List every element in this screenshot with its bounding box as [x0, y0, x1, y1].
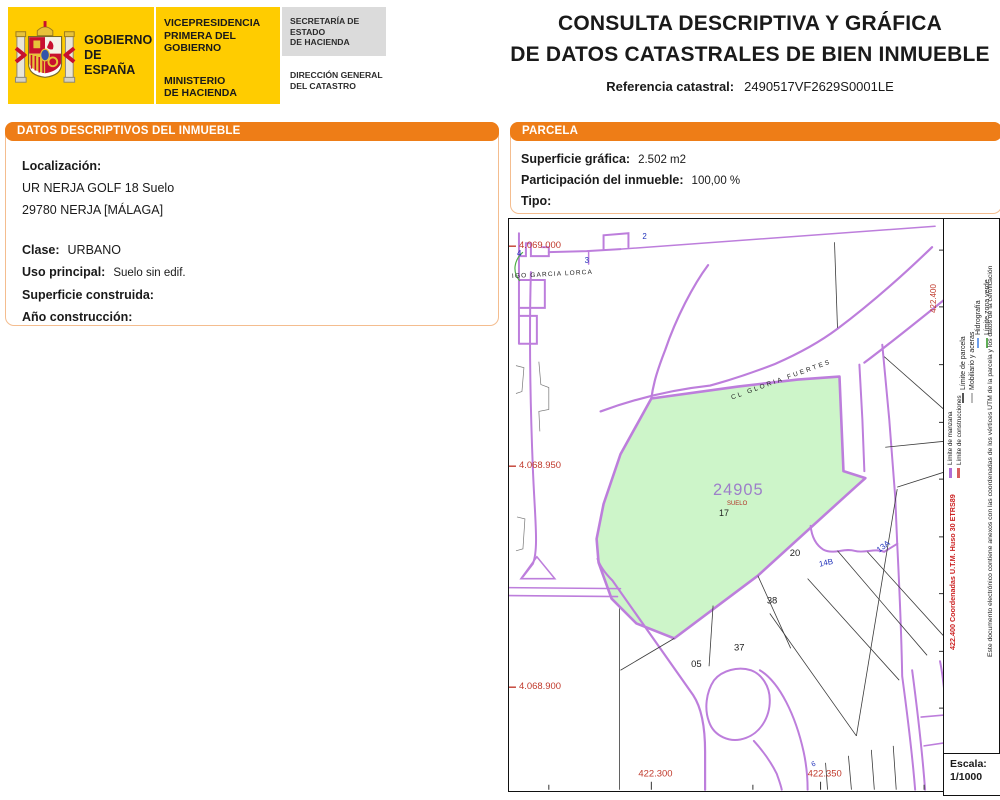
house-number-14b: 14B — [818, 557, 834, 569]
superficie-grafica-label: Superficie gráfica: — [521, 149, 630, 169]
manzana-line-symbol — [949, 468, 952, 478]
legend-limite-parcela: Límite de parcela — [960, 336, 967, 390]
plot-number-20: 20 — [790, 548, 801, 559]
secretaria-label: SECRETARÍA DE ESTADO DE HACIENDA — [290, 16, 386, 48]
localizacion-line-2: 29780 NERJA [MÁLAGA] — [22, 199, 498, 221]
parcel-use-label: SUELO — [727, 501, 748, 507]
participacion-label: Participación del inmueble: — [521, 170, 684, 190]
plot-number-05: 05 — [691, 659, 702, 670]
uso-principal-value: Suelo sin edif. — [113, 262, 185, 284]
scale-label: Escala: — [950, 758, 1000, 771]
utm-y-label-2: 4.068.950 — [519, 460, 561, 471]
plot-number-38: 38 — [767, 596, 778, 607]
parcela-line-symbol — [962, 393, 964, 403]
house-number-4: 4 — [517, 249, 522, 258]
legend-hidrografia: Hidrografía — [975, 300, 982, 335]
direccion-block: DIRECCIÓN GENERAL DEL CATASTRO — [282, 56, 386, 104]
spain-coat-of-arms — [14, 18, 76, 94]
utm-x-label-1: 422.300 — [638, 769, 672, 780]
localizacion-label: Localización: — [22, 159, 101, 173]
title-line-1: CONSULTA DESCRIPTIVA Y GRÁFICA — [500, 8, 1000, 39]
scale-box: Escala: 1/1000 — [943, 753, 1000, 796]
street-name-garcia-lorca: IGO GARCIA LORCA — [512, 269, 594, 280]
house-number-2: 2 — [642, 232, 647, 241]
utm-x-label-3-rotated: 422.400 — [929, 284, 938, 313]
title-line-2: DE DATOS CATASTRALES DE BIEN INMUEBLE — [500, 39, 1000, 70]
mobiliario-line-symbol — [971, 393, 973, 403]
cadastral-map: 4.069.000 4.068.950 4.068.900 422.300 42… — [508, 218, 945, 792]
utm-y-label-3: 4.068.900 — [519, 681, 561, 692]
construcciones-line-symbol — [957, 468, 960, 478]
ministry-block: VICEPRESIDENCIA PRIMERA DEL GOBIERNO MIN… — [156, 7, 280, 104]
cadastral-reference-label: Referencia catastral: — [606, 79, 734, 94]
uso-principal-label: Uso principal: — [22, 261, 105, 283]
house-number-3: 3 — [585, 256, 590, 265]
cadastral-certificate-page: GOBIERNO DE ESPAÑA VICEPRESIDENCIA PRIME… — [0, 0, 1000, 800]
plot-number-37: 37 — [734, 642, 745, 653]
anio-construccion-label: Año construcción: — [22, 306, 132, 328]
utm-x-label-2: 422.350 — [808, 769, 842, 780]
utm-y-label-1: 4.069.000 — [519, 240, 561, 251]
clase-value: URBANO — [68, 239, 121, 261]
government-logo-block: GOBIERNO DE ESPAÑA — [8, 7, 154, 104]
cadastral-reference-row: Referencia catastral:2490517VF2629S0001L… — [500, 79, 1000, 94]
vicepresidencia-label: VICEPRESIDENCIA PRIMERA DEL GOBIERNO — [164, 17, 280, 55]
hidrografia-line-symbol — [977, 338, 979, 348]
certification-note: Este documento electrónico contiene anex… — [987, 227, 994, 657]
descriptive-data-panel: DATOS DESCRIPTIVOS DEL INMUEBLE Localiza… — [5, 122, 499, 326]
gobierno-de-espana-label: GOBIERNO DE ESPAÑA — [84, 33, 154, 78]
cadastral-map-drawing: 4.069.000 4.068.950 4.068.900 422.300 42… — [509, 219, 944, 791]
legend-block-limits-1: Límite de manzana Límite de construccion… — [947, 400, 964, 478]
parcel-number-label: 24905 — [713, 481, 764, 499]
highlighted-parcel-24905 — [597, 377, 866, 639]
localizacion-line-1: UR NERJA GOLF 18 Suelo — [22, 177, 498, 199]
document-title-block: CONSULTA DESCRIPTIVA Y GRÁFICA DE DATOS … — [500, 8, 1000, 94]
parcel-house-number: 17 — [719, 508, 729, 518]
utm-coords-note: 422.400 Coordenadas U.T.M. Huso 30 ETRS8… — [948, 480, 957, 650]
tipo-label: Tipo: — [521, 191, 551, 211]
ministerio-label: MINISTERIO DE HACIENDA — [164, 75, 280, 100]
cadastral-reference-value: 2490517VF2629S0001LE — [744, 79, 894, 94]
parcel-panel: PARCELA Superficie gráfica: 2.502 m2 Par… — [510, 122, 1000, 214]
scale-value: 1/1000 — [950, 771, 1000, 784]
y-coordinate-ticks — [509, 246, 516, 687]
superficie-grafica-value: 2.502 m2 — [638, 150, 686, 170]
legend-limite-manzana: Límite de manzana — [947, 411, 954, 465]
secretaria-block: SECRETARÍA DE ESTADO DE HACIENDA — [282, 7, 386, 56]
parcel-panel-header: PARCELA — [510, 122, 1000, 141]
house-number-13a: 13A — [875, 538, 892, 554]
house-number-6: 6 — [810, 761, 817, 769]
legend-limite-construcciones: Límite de construcciones — [956, 395, 963, 465]
superficie-construida-label: Superficie construida: — [22, 284, 154, 306]
descriptive-data-panel-header: DATOS DESCRIPTIVOS DEL INMUEBLE — [5, 122, 499, 141]
participacion-value: 100,00 % — [692, 171, 741, 191]
direccion-general-label: DIRECCIÓN GENERAL DEL CATASTRO — [290, 70, 386, 91]
clase-label: Clase: — [22, 239, 60, 261]
